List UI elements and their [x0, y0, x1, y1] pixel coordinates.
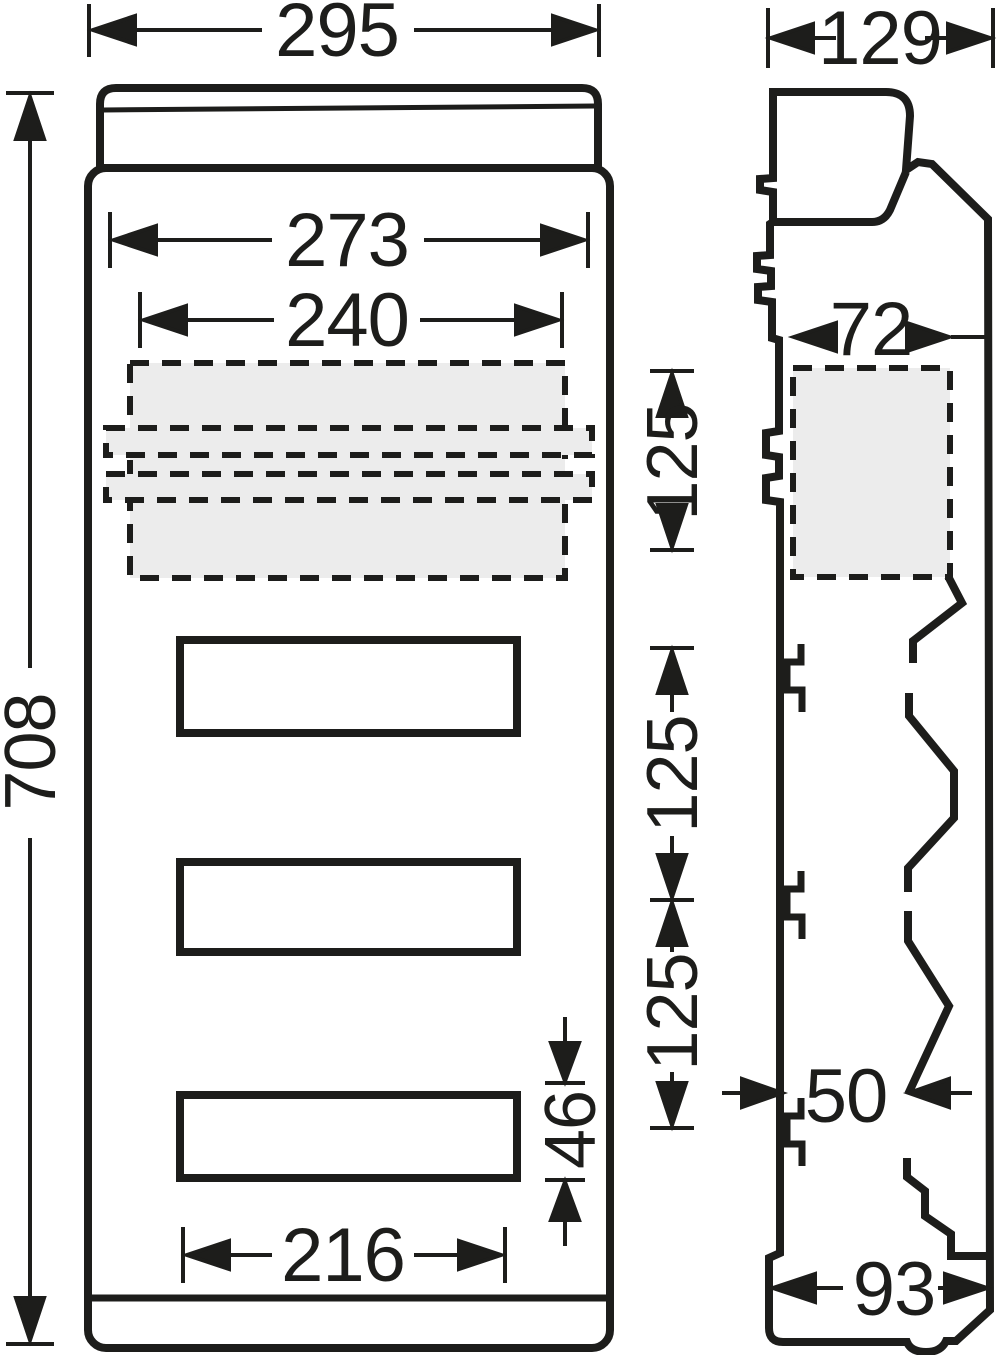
- dim-label-base-depth: 93: [853, 1252, 936, 1328]
- dim-label-row-spacing-top: 125: [637, 403, 709, 520]
- front-lid-outline: [100, 88, 598, 168]
- flange-band-2: [106, 474, 592, 500]
- side-view: [757, 92, 990, 1352]
- arrow-down-icon: [16, 1298, 44, 1340]
- module-window-1: [180, 640, 517, 733]
- arrow-up-icon: [658, 651, 686, 693]
- dim-label-overall-width: 295: [275, 0, 399, 69]
- dim-label-row-spacing-middle: 125: [637, 715, 709, 832]
- arrow-up-icon: [658, 903, 686, 945]
- dim-label-rail-width: 240: [285, 283, 409, 359]
- arrow-up-icon: [16, 97, 44, 139]
- dim-label-depth: 129: [818, 1, 942, 77]
- arrow-left-icon: [771, 24, 813, 52]
- technical-drawing: [0, 0, 1000, 1355]
- dim-label-inner-depth: 50: [805, 1059, 888, 1135]
- arrow-down-icon: [658, 855, 686, 897]
- module-window-3: [180, 1095, 517, 1178]
- drawing-canvas: 295 273 240 216 708 125 125 125 46 129 7…: [0, 0, 1000, 1355]
- dim-label-overall-height: 708: [0, 693, 67, 810]
- arrow-down-icon: [658, 1083, 686, 1125]
- flange-band-1: [106, 428, 592, 455]
- dim-label-window-width: 216: [281, 1218, 405, 1294]
- dim-label-flange-depth: 72: [830, 292, 913, 368]
- dim-label-row-spacing-bottom: 125: [637, 953, 709, 1070]
- dim-label-window-height: 46: [535, 1091, 607, 1169]
- arrow-right-icon: [948, 24, 990, 52]
- knockout-area: [130, 363, 565, 578]
- side-knockout-area: [793, 368, 950, 577]
- side-body-outline: [757, 92, 990, 1352]
- arrow-right-icon: [553, 16, 595, 44]
- arrow-left-icon: [93, 16, 135, 44]
- module-window-2: [180, 862, 517, 952]
- dim-label-opening-width: 273: [285, 203, 409, 279]
